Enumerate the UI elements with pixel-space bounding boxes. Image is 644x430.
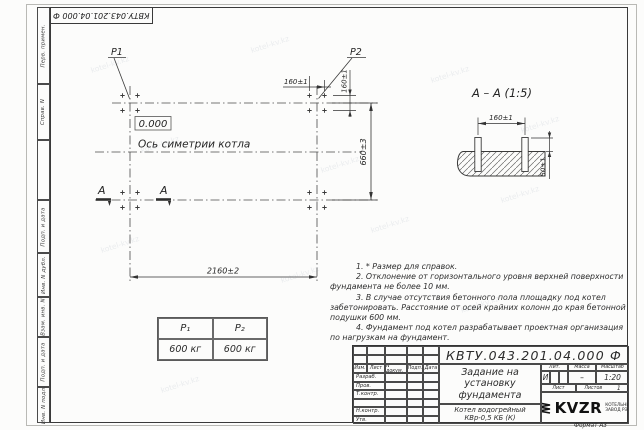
sig-cell (385, 407, 407, 416)
rotated-docnumber-stamp: КВТУ.043.201.04.000 Ф (50, 7, 153, 24)
company-name: KVZR (555, 399, 603, 417)
margin-cell-inv-dubl: Инв. N дубл. (37, 253, 50, 297)
sig-cell (385, 416, 407, 425)
row-razrab: Разраб. (353, 373, 385, 382)
margin-label: Инв. N дубл. (41, 256, 47, 294)
col-list: Лист (367, 364, 385, 373)
drawing-sheet: КВТУ.043.201.04.000 Ф Перв. примен. Спра… (0, 0, 644, 430)
margin-label: Справ. N (41, 99, 47, 125)
company-logo-cell: KVZR КОТЕЛЬНЫЙ ЗАВОД РЭП (541, 392, 629, 424)
sheet-label: Лист (541, 384, 576, 392)
note-4: 4. Фундамент под котел разрабатывает про… (330, 323, 626, 343)
title-block: КВТУ.043.201.04.000 Ф Изм. Лист N докум.… (352, 345, 628, 423)
rev-cell (353, 346, 367, 355)
col-data: Дата (423, 364, 439, 373)
mass-value: – (568, 371, 596, 384)
notes-block: 1. * Размер для справок. 2. Отклонение о… (330, 262, 626, 344)
title-block-doc-number: КВТУ.043.201.04.000 Ф (439, 346, 629, 364)
margin-label: Перв. примен. (41, 24, 47, 67)
sheets-value: 1 (617, 385, 621, 392)
sig-cell (423, 373, 439, 382)
margin-cell-vzam-inv: Взам. инв. N (37, 297, 50, 337)
sig-cell (407, 399, 423, 408)
sig-cell (385, 390, 407, 399)
title-block-title: Задание на установку фундамента (439, 364, 541, 404)
note-1: 1. * Размер для справок. (330, 262, 626, 272)
sig-cell (385, 382, 407, 391)
rev-cell (385, 346, 407, 355)
lit-cell (550, 371, 559, 384)
loads-table: P₁ P₂ 600 кг 600 кг (157, 317, 268, 361)
rev-cell (353, 355, 367, 364)
margin-label: Взам. инв. N (41, 298, 47, 335)
margin-cell-perv-primen: Перв. примен. (37, 7, 50, 84)
company-logo: KVZR КОТЕЛЬНЫЙ ЗАВОД РЭП (541, 399, 629, 417)
scale-label: Масштаб (596, 364, 629, 371)
rev-cell (423, 346, 439, 355)
lit-label: Лит. (541, 364, 568, 371)
margin-cell-podp-data-2: Подп. и дата (37, 337, 50, 387)
sig-cell (407, 382, 423, 391)
margin-label: Инв. N подл. (41, 386, 47, 424)
sig-cell (423, 382, 439, 391)
scale-value: 1:20 (596, 371, 629, 384)
note-3: 3. В случае отсутствия бетонного пола пл… (330, 293, 626, 324)
rotated-docnumber-text: КВТУ.043.201.04.000 Ф (53, 11, 150, 20)
margin-cell-sprav-n: Справ. N (37, 84, 50, 140)
row-tkontr: Т.контр. (353, 390, 385, 399)
title-block-product: Котел водогрейный КВр-0,5 КБ (К) (439, 404, 541, 424)
rev-cell (385, 355, 407, 364)
loads-header-p1: P₁ (158, 318, 213, 339)
sig-cell (407, 416, 423, 425)
mass-label: Масса (568, 364, 596, 371)
rev-cell (407, 355, 423, 364)
sig-cell (407, 373, 423, 382)
margin-label: Подп. и дата (41, 207, 47, 246)
sig-cell (423, 390, 439, 399)
rev-cell (367, 346, 385, 355)
col-ndoc: N докум. (385, 364, 407, 373)
sig-cell (385, 373, 407, 382)
rev-cell (423, 355, 439, 364)
row-nkontr: Н.контр. (353, 407, 385, 416)
note-2: 2. Отклонение от горизонтального уровня … (330, 272, 626, 292)
sig-cell (385, 399, 407, 408)
margin-cell-inv-podl: Инв. N подл. (37, 387, 50, 423)
col-podp: Подп. (407, 364, 423, 373)
row-utv: Утв. (353, 416, 385, 425)
sig-cell (407, 407, 423, 416)
lit-value: И (541, 371, 550, 384)
rev-cell (407, 346, 423, 355)
rev-cell (367, 355, 385, 364)
row-prov: Пров. (353, 382, 385, 391)
company-subtitle: КОТЕЛЬНЫЙ ЗАВОД РЭП (605, 403, 629, 414)
margin-cell-empty (37, 140, 50, 200)
sig-cell (423, 399, 439, 408)
margin-label: Подп. и дата (41, 342, 47, 381)
margin-cell-podp-data-1: Подп. и дата (37, 200, 50, 253)
loads-header-p2: P₂ (213, 318, 268, 339)
lit-cell (559, 371, 568, 384)
sig-cell (423, 407, 439, 416)
sig-cell (423, 416, 439, 425)
format-note: Формат А3 (553, 423, 628, 429)
spring-coil-icon (541, 402, 552, 415)
loads-value-p2: 600 кг (213, 339, 268, 360)
row-blank (353, 399, 385, 408)
sig-cell (407, 390, 423, 399)
loads-value-p1: 600 кг (158, 339, 213, 360)
sheets-label: Листов (584, 386, 602, 391)
col-izm: Изм. (353, 364, 367, 373)
sheets-cell: Листов 1 (576, 384, 629, 392)
company-subtitle-line2: ЗАВОД РЭП (605, 408, 629, 413)
